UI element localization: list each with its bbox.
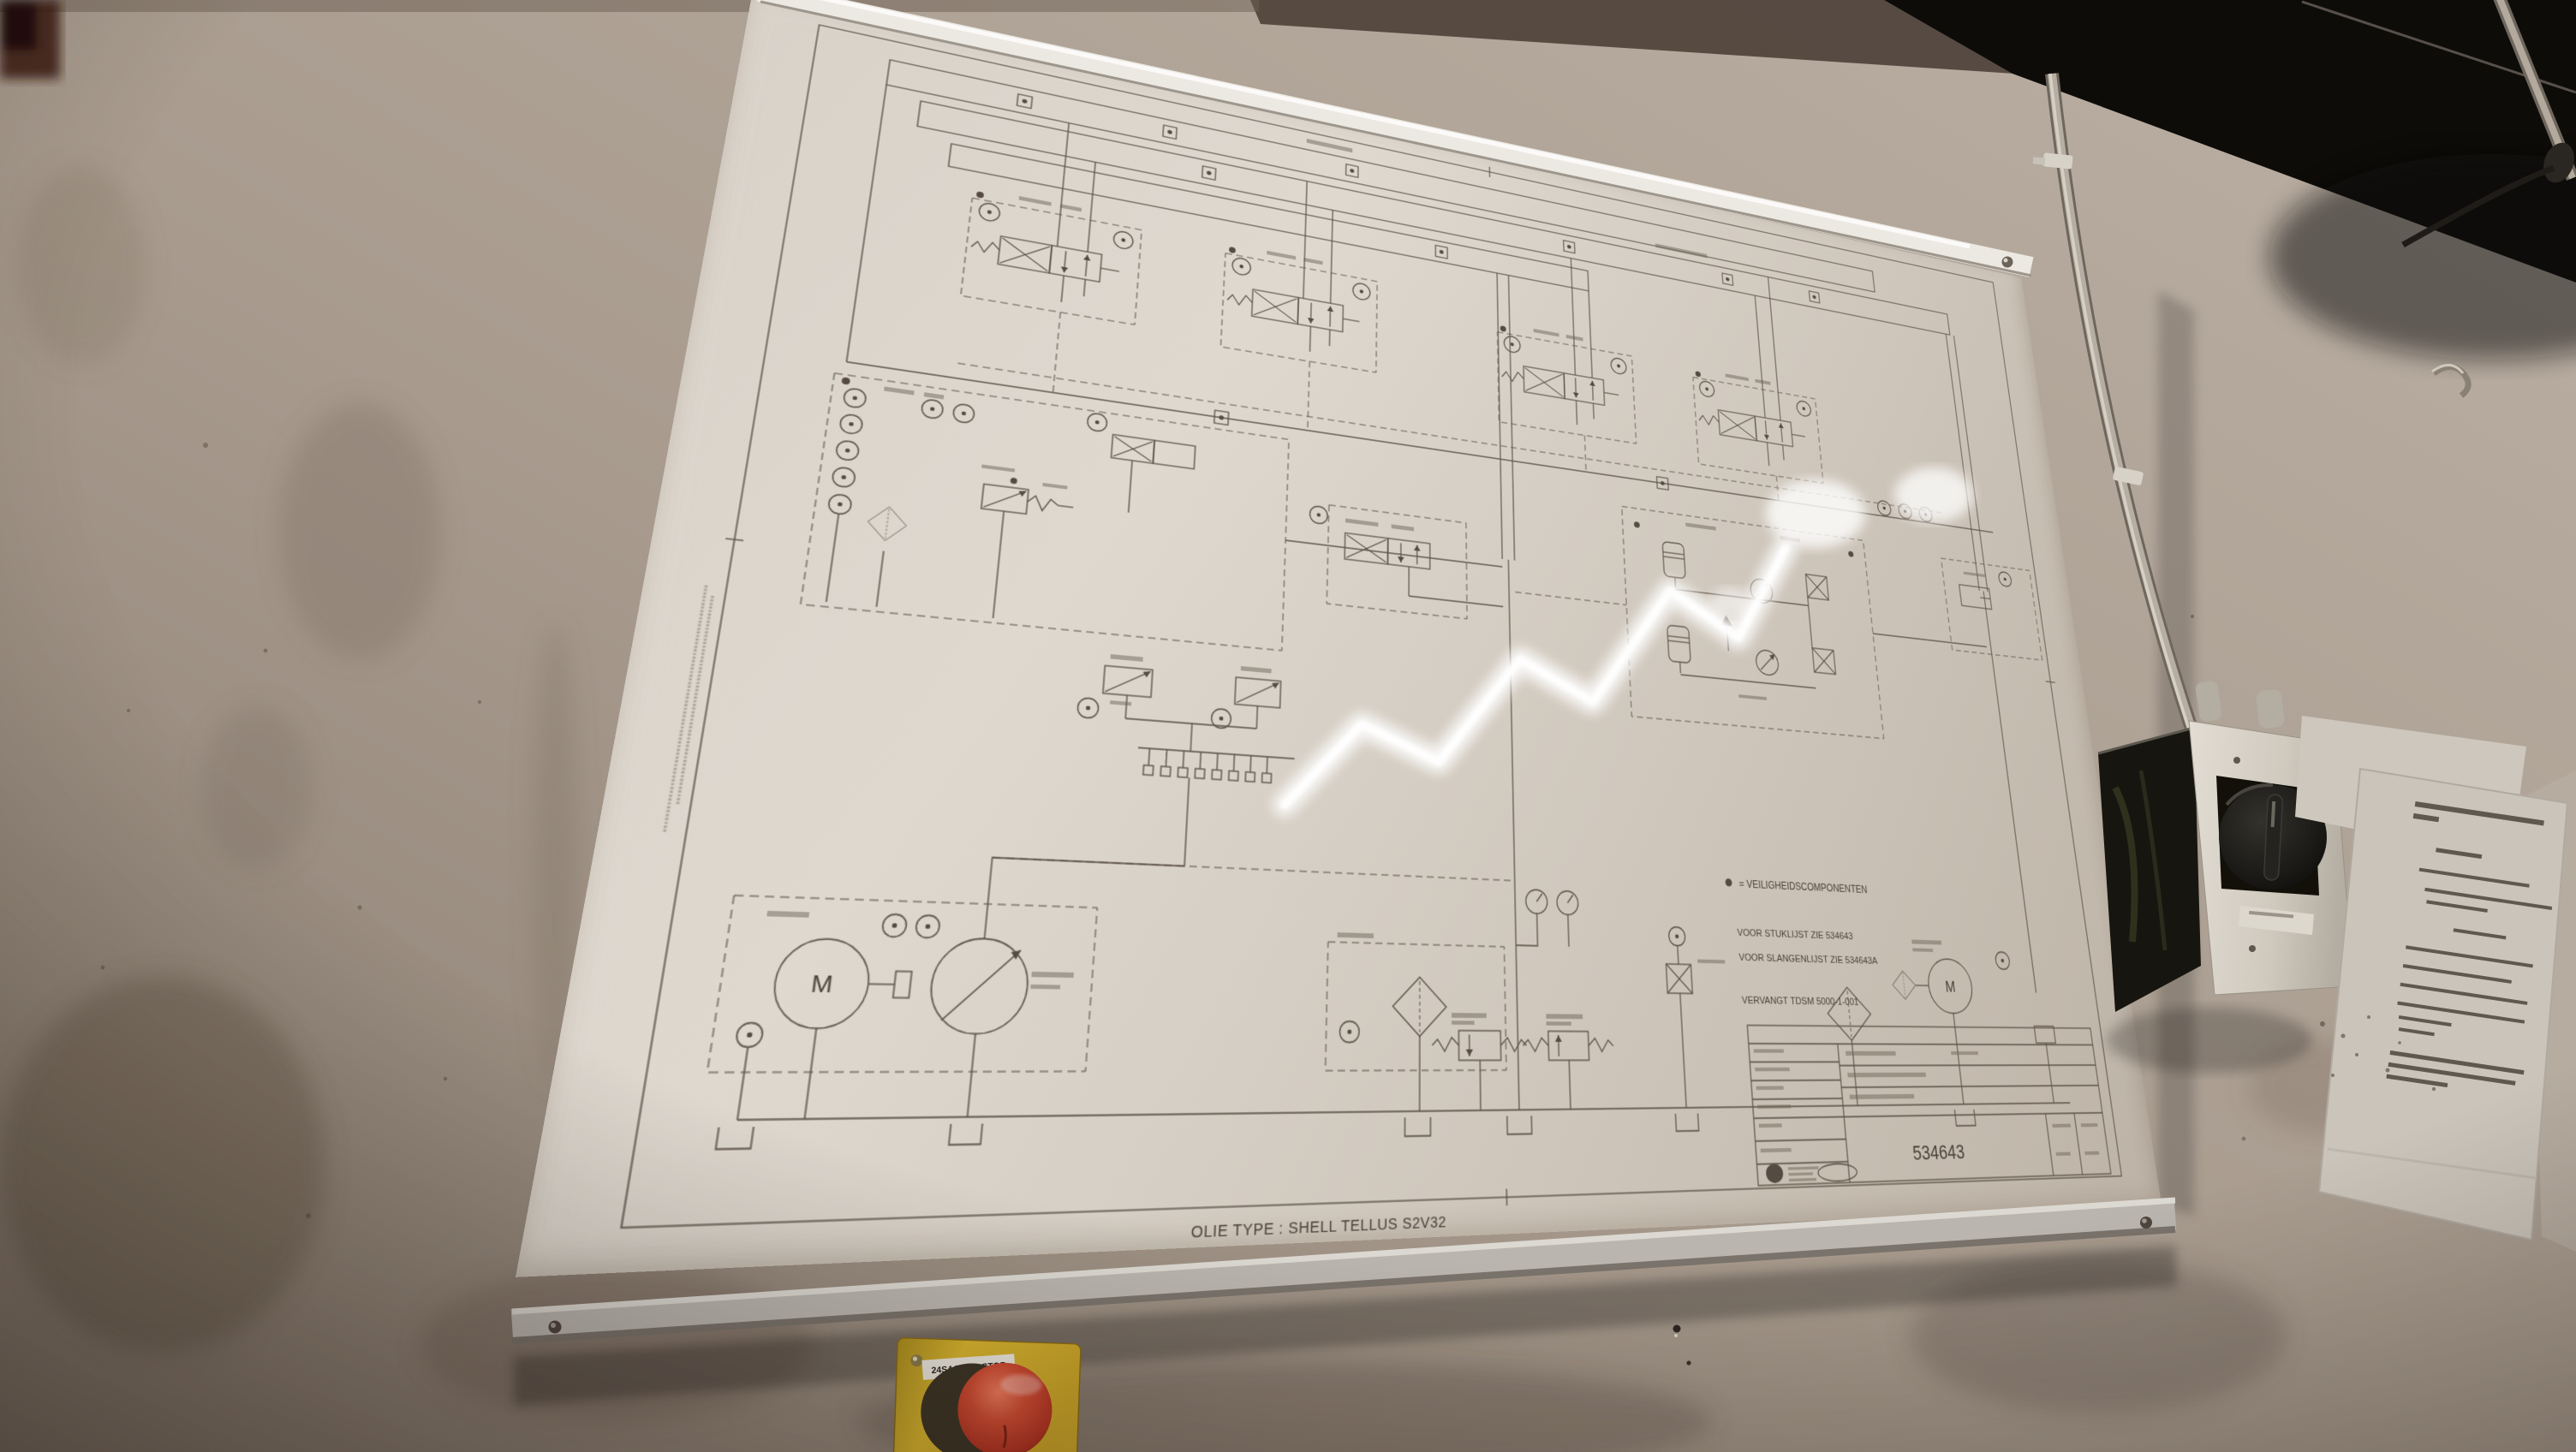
notice-sleeve: [2319, 769, 2567, 1240]
parts-list-note: VOOR STUKLIJST ZIE 534643: [1737, 926, 1853, 942]
dirt-specks: [2320, 1015, 2436, 1091]
pipe-clip: [2113, 467, 2144, 486]
workshop-wall-photo: M: [0, 0, 2576, 1452]
estop-screw: [910, 1354, 922, 1366]
hose-list-note: VOOR SLANGENLIJST ZIE 534643A: [1738, 951, 1878, 967]
replaces-note: VERVANGT TDSM 5000-1-001: [1741, 994, 1858, 1008]
company-logo: [1765, 1162, 1857, 1184]
motor-label: M: [809, 971, 834, 998]
schematic-notes: = VEILIGHEIDSCOMPONENTEN VOOR STUKLIJST …: [1725, 877, 1881, 1008]
wall-hook: [2432, 365, 2468, 396]
accumulator-block: [1513, 491, 2000, 749]
safety-bullet: [1725, 878, 1732, 886]
side-panel: [2528, 771, 2576, 1252]
rotary-switch-knob[interactable]: [2219, 785, 2327, 890]
border-micro-text: [665, 586, 707, 832]
oil-type-note: OLIE TYPE : SHELL TELLUS S2V32: [1190, 1212, 1446, 1241]
switch-label-plate: [2239, 906, 2314, 935]
rail-screw: [549, 1321, 562, 1334]
drawing-border: [595, 15, 2127, 1239]
pipe-connector: [2538, 139, 2576, 187]
wall-screw: [1673, 1325, 1691, 1366]
pipe-clip: [2033, 152, 2073, 169]
hydraulic-schematic-drawing: M: [516, 0, 2162, 1277]
estop-label: 24S4 NOODSTOP: [931, 1360, 1006, 1376]
center-valve-cluster: [1308, 503, 1504, 623]
rail-screw: [2140, 1217, 2152, 1229]
left-component-enclosure: [801, 373, 1505, 672]
notice-papers: [2295, 716, 2576, 1252]
bottom-center-components: [968, 858, 1735, 1117]
notice-text-lines: [2375, 801, 2565, 1098]
corner-pipe: [2403, 0, 2576, 245]
drawing-number: 534643: [1911, 1141, 1965, 1165]
paper-top: [2295, 716, 2526, 861]
switch-handle: [2263, 794, 2282, 881]
cable-gland: [2256, 689, 2285, 729]
safety-note: = VEILIGHEIDSCOMPONENTEN: [1738, 878, 1868, 896]
rail-screw: [2002, 257, 2013, 268]
tank-symbols: [716, 1110, 1976, 1149]
manifold-comb: [1073, 652, 1297, 784]
estop-label-plate: [921, 1354, 1015, 1379]
upper-valve-groups: [951, 105, 1826, 508]
isolator-switch-assembly: [2098, 680, 2353, 1073]
right-edge-group: [1877, 500, 2042, 660]
emergency-stop-button[interactable]: [957, 1361, 1054, 1452]
cable-gland: [2195, 680, 2222, 722]
emergency-stop-station: 24S4 NOODSTOP: [893, 1337, 1081, 1452]
hydraulic-schematic-poster: M: [516, 0, 2162, 1277]
black-cable: [2403, 168, 2554, 245]
switch-backplate: [2216, 776, 2319, 896]
motor-pump-group: M: [700, 750, 1189, 1121]
doorframe-corner-shadow: [0, 0, 60, 79]
estop-box: [893, 1337, 1081, 1452]
estop-button-shroud: [919, 1361, 1025, 1452]
title-block: 534643: [1747, 1026, 2111, 1186]
motor-label: M: [1945, 979, 1957, 996]
switch-enclosure: [2189, 721, 2353, 995]
ceiling-cable: [2302, 2, 2576, 92]
